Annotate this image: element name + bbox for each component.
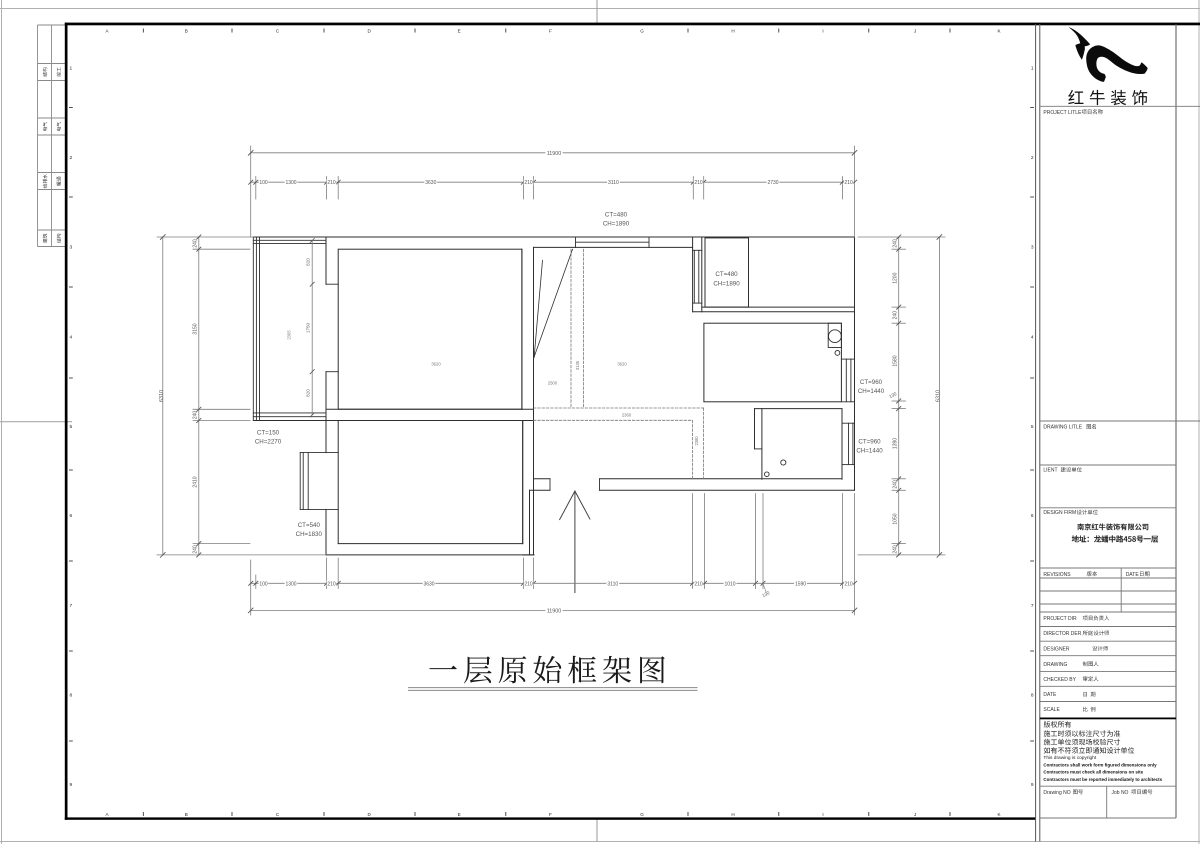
svg-text:7: 7	[69, 603, 72, 609]
svg-text:3110: 3110	[607, 581, 618, 587]
svg-text:DESIGNER: DESIGNER	[1043, 647, 1070, 653]
svg-text:5: 5	[1031, 424, 1034, 430]
svg-text:1750: 1750	[306, 322, 311, 333]
svg-text:6310: 6310	[159, 390, 165, 402]
svg-text:F: F	[549, 29, 552, 34]
svg-text:2360: 2360	[622, 412, 632, 417]
svg-text:210: 210	[524, 180, 533, 186]
svg-text:PROJECT LITLE: PROJECT LITLE	[1043, 110, 1082, 116]
svg-text:I: I	[822, 812, 823, 817]
svg-text:3110: 3110	[608, 180, 619, 186]
svg-text:DRAWING LITLE: DRAWING LITLE	[1043, 425, 1082, 431]
svg-text:DIRECTOR DER: DIRECTOR DER	[1043, 631, 1081, 637]
svg-text:2730: 2730	[767, 180, 778, 186]
svg-text:CT=540: CT=540	[298, 522, 321, 529]
svg-text:210: 210	[524, 581, 533, 587]
svg-text:210: 210	[694, 180, 703, 186]
svg-text:3630: 3630	[425, 180, 436, 186]
svg-text:CH=1890: CH=1890	[603, 221, 630, 228]
svg-text:Drawing NO: Drawing NO	[1043, 790, 1070, 796]
svg-text:1580: 1580	[893, 355, 899, 366]
svg-text:210: 210	[844, 581, 853, 587]
svg-text:2500: 2500	[548, 381, 558, 386]
svg-text:9: 9	[1031, 782, 1034, 788]
svg-text:CT=480: CT=480	[715, 271, 738, 278]
svg-text:CT=480: CT=480	[605, 211, 628, 218]
svg-text:210: 210	[327, 581, 336, 587]
svg-text:6: 6	[1031, 513, 1034, 519]
svg-text:SCALE: SCALE	[1043, 707, 1060, 713]
svg-text:7: 7	[1031, 603, 1034, 609]
svg-text:240: 240	[193, 411, 199, 420]
svg-text:1: 1	[1031, 66, 1034, 72]
svg-text:REVISIONS: REVISIONS	[1043, 572, 1071, 578]
svg-text:3: 3	[1031, 245, 1034, 251]
svg-text:1200: 1200	[893, 272, 899, 283]
svg-text:240: 240	[893, 545, 899, 554]
svg-text:1300: 1300	[285, 180, 296, 186]
svg-text:240: 240	[193, 239, 199, 248]
svg-text:210: 210	[694, 581, 703, 587]
svg-text:6310: 6310	[935, 390, 941, 402]
svg-text:1590: 1590	[795, 581, 806, 587]
svg-text:DESIGN FIRM: DESIGN FIRM	[1043, 510, 1076, 516]
svg-text:E: E	[458, 812, 461, 817]
svg-text:2410: 2410	[193, 476, 199, 487]
svg-text:CT=150: CT=150	[257, 429, 280, 436]
svg-text:210: 210	[327, 180, 336, 186]
svg-text:210: 210	[844, 180, 853, 186]
svg-text:J: J	[914, 29, 916, 34]
svg-text:1390: 1390	[893, 438, 899, 449]
svg-text:CT=960: CT=960	[858, 438, 881, 445]
svg-text:Contractors shall work form fi: Contractors shall work form figured dime…	[1043, 762, 1157, 767]
svg-text:3135: 3135	[575, 360, 580, 370]
svg-text:3: 3	[69, 245, 72, 251]
svg-text:2: 2	[69, 155, 72, 161]
svg-text:9: 9	[69, 782, 72, 788]
svg-text:I: I	[822, 29, 823, 34]
svg-text:CH=2270: CH=2270	[255, 439, 282, 446]
svg-text:2305: 2305	[287, 330, 292, 340]
svg-text:CH=1440: CH=1440	[856, 448, 883, 455]
svg-text:G: G	[640, 812, 644, 817]
svg-text:F: F	[549, 812, 552, 817]
svg-text:3150: 3150	[193, 323, 199, 334]
svg-text:8: 8	[69, 693, 72, 699]
svg-text:H: H	[731, 29, 734, 34]
svg-text:Contractors must check all dim: Contractors must check all dimensions on…	[1043, 770, 1143, 775]
svg-text:CHECKED BY: CHECKED BY	[1043, 677, 1076, 683]
svg-text:DATE: DATE	[1043, 692, 1057, 698]
svg-text:240: 240	[193, 545, 199, 554]
svg-text:3630: 3630	[423, 581, 434, 587]
svg-text:1300: 1300	[285, 581, 296, 587]
svg-text:PROJECT DIR: PROJECT DIR	[1043, 616, 1077, 622]
svg-text:DATE: DATE	[1126, 572, 1140, 578]
svg-text:820: 820	[306, 389, 311, 397]
svg-text:100: 100	[259, 581, 268, 587]
svg-text:J: J	[914, 812, 916, 817]
svg-text:E: E	[458, 29, 461, 34]
svg-text:240: 240	[893, 480, 899, 489]
svg-text:CH=1440: CH=1440	[858, 388, 885, 395]
svg-text:Job NO: Job NO	[1112, 790, 1129, 796]
svg-text:CT=960: CT=960	[860, 379, 883, 386]
svg-text:G: G	[640, 29, 644, 34]
svg-text:B: B	[185, 812, 188, 817]
svg-text:1: 1	[69, 66, 72, 72]
svg-text:3620: 3620	[431, 362, 441, 367]
svg-text:LIENT: LIENT	[1043, 468, 1057, 474]
svg-text:CH=1890: CH=1890	[713, 281, 740, 288]
svg-text:DRAWING: DRAWING	[1043, 662, 1067, 668]
svg-text:240: 240	[893, 311, 899, 320]
svg-text:1050: 1050	[893, 513, 899, 524]
svg-text:H: H	[731, 812, 734, 817]
svg-text:3620: 3620	[617, 362, 627, 367]
svg-text:This drawing is copyright: This drawing is copyright	[1043, 755, 1096, 761]
svg-text:2: 2	[1031, 155, 1034, 161]
svg-text:5: 5	[69, 424, 72, 430]
svg-text:2380: 2380	[694, 436, 699, 446]
svg-text:240: 240	[893, 239, 899, 248]
svg-text:8: 8	[1031, 693, 1034, 699]
svg-text:11900: 11900	[547, 151, 562, 157]
svg-text:4: 4	[1031, 335, 1034, 341]
svg-text:B: B	[185, 29, 188, 34]
svg-text:820: 820	[306, 258, 311, 266]
svg-text:1010: 1010	[724, 581, 735, 587]
svg-text:6: 6	[69, 513, 72, 519]
svg-text:11900: 11900	[547, 608, 562, 614]
svg-text:4: 4	[69, 335, 72, 341]
svg-text:Contractors must be reported i: Contractors must be reported immediately…	[1043, 777, 1162, 782]
svg-text:CH=1830: CH=1830	[296, 531, 323, 538]
svg-text:100: 100	[259, 180, 268, 186]
